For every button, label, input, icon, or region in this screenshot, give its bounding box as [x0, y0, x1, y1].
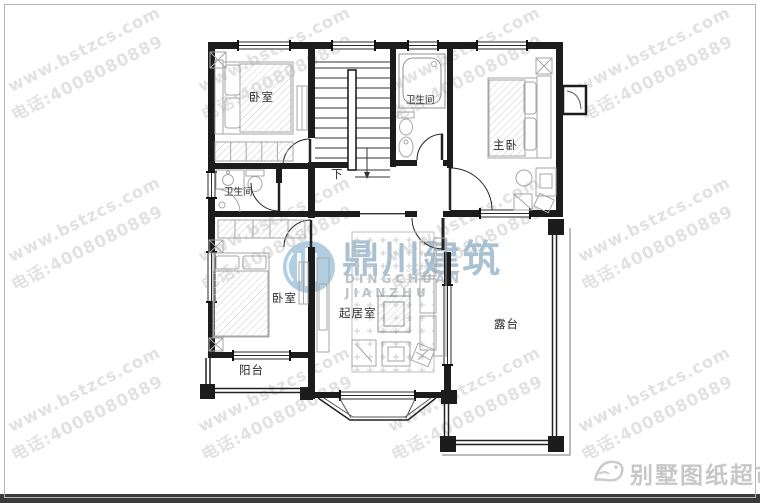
terrace-outer-line: [442, 228, 570, 455]
window-bedroom1-north: [237, 40, 291, 51]
window-bedroom2-south: [232, 350, 291, 361]
window-living-east: [442, 284, 453, 366]
window-bath-left-west: [206, 171, 217, 199]
window-living-south: [339, 390, 416, 401]
furniture-bath-left: [216, 170, 264, 212]
floor-plan-drawing: [0, 0, 760, 503]
furniture-bedroom2: [209, 220, 308, 351]
furniture-bedroom1: [210, 52, 307, 161]
window-master-north: [476, 40, 528, 51]
window-stairs-north: [331, 40, 376, 51]
stairs: [315, 62, 390, 179]
bay-window: [318, 398, 436, 420]
footer-brand-text: 别墅图纸超市: [630, 456, 760, 490]
window-bath-north: [407, 40, 439, 51]
footer-bar: [0, 494, 760, 503]
furniture-bath-top: [398, 54, 445, 157]
flue-box: [563, 86, 586, 114]
furniture-master: [488, 58, 556, 213]
hall-opening-line: [360, 213, 405, 214]
footer-brand-icon: [590, 452, 628, 490]
furniture-living: [317, 232, 446, 372]
floorplan-page: www.bstzcs.com电话:4008080889www.bstzcs.co…: [0, 0, 760, 503]
